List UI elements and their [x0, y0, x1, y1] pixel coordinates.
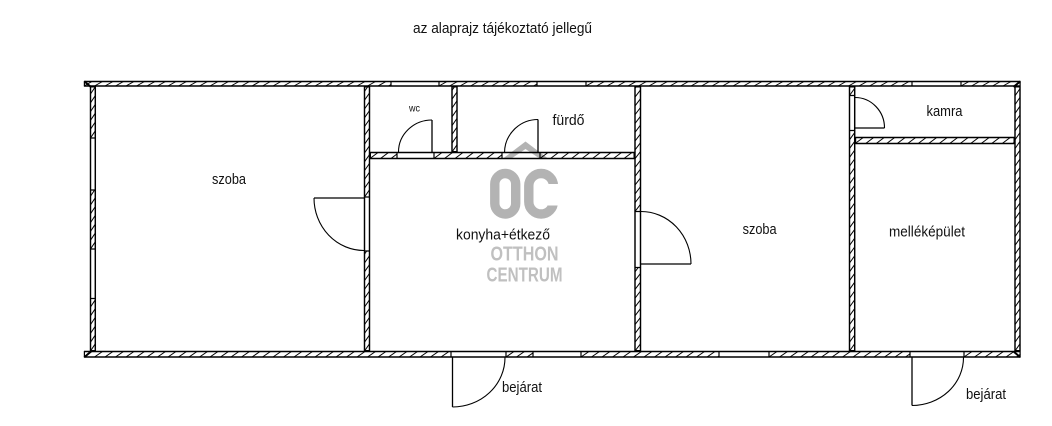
svg-text:az alaprajz tájékoztató jelleg: az alaprajz tájékoztató jellegű	[413, 20, 592, 37]
svg-text:fürdő: fürdő	[553, 112, 585, 129]
svg-text:szoba: szoba	[212, 171, 247, 188]
svg-text:konyha+étkező: konyha+étkező	[456, 227, 550, 244]
svg-text:CENTRUM: CENTRUM	[487, 265, 563, 287]
svg-text:melléképület: melléképület	[889, 224, 966, 241]
svg-text:bejárat: bejárat	[966, 386, 1007, 403]
svg-text:bejárat: bejárat	[502, 379, 543, 396]
svg-text:kamra: kamra	[927, 103, 964, 120]
svg-text:OTTHON: OTTHON	[491, 244, 559, 266]
svg-text:szoba: szoba	[743, 221, 778, 238]
svg-text:wc: wc	[408, 104, 420, 115]
